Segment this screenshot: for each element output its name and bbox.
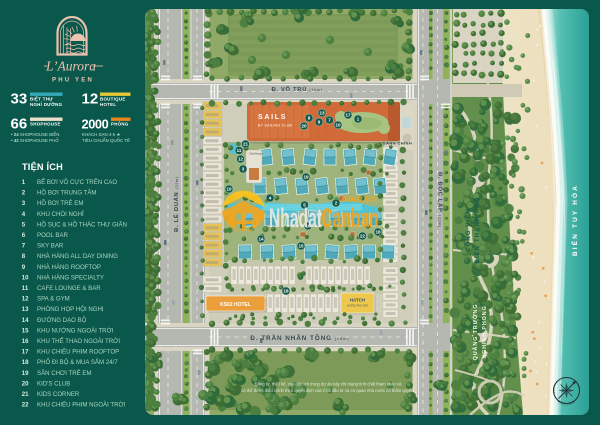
- svg-text:22: 22: [22, 402, 29, 409]
- svg-text:18: 18: [22, 359, 29, 366]
- svg-text:BIỆT THỰ: BIỆT THỰ: [30, 96, 53, 101]
- svg-text:có thể được điều chỉnh theo qu: có thể được điều chỉnh theo quyết định c…: [241, 388, 415, 393]
- svg-text:8: 8: [22, 253, 26, 260]
- svg-text:HỒ BƠI TRẺ EM: HỒ BƠI TRẺ EM: [37, 200, 83, 207]
- svg-text:20: 20: [301, 124, 307, 129]
- svg-text:KHU CHÒI NGHỈ: KHU CHÒI NGHỈ: [37, 211, 84, 218]
- svg-text:PHU YEN: PHU YEN: [52, 78, 94, 84]
- svg-text:2000: 2000: [82, 117, 109, 132]
- svg-text:1: 1: [22, 179, 26, 186]
- svg-text:NHÀ HÀNG ALL DAY DINING: NHÀ HÀNG ALL DAY DINING: [37, 253, 118, 260]
- svg-text:SAILS: SAILS: [258, 114, 287, 121]
- svg-text:NGHỈ DƯỠNG: NGHỈ DƯỠNG: [30, 102, 63, 107]
- svg-text:HỒ BƠI TRUNG TÂM: HỒ BƠI TRUNG TÂM: [37, 190, 97, 197]
- svg-text:PHÒNG HỌP HỘI NGHỊ: PHÒNG HỌP HỘI NGHỊ: [37, 306, 104, 313]
- svg-text:10: 10: [226, 187, 232, 192]
- svg-text:• 24 SHOPHOUSE BIỂN: • 24 SHOPHOUSE BIỂN: [11, 132, 59, 137]
- svg-text:PHÒNG: PHÒNG: [111, 121, 129, 126]
- svg-text:KHU NƯỚNG NGOÀI TRỜI: KHU NƯỚNG NGOÀI TRỜI: [37, 327, 114, 334]
- svg-text:BIỂN TUY HÒA: BIỂN TUY HÒA: [570, 184, 579, 256]
- svg-text:18: 18: [283, 289, 289, 294]
- svg-text:20: 20: [22, 380, 29, 387]
- svg-text:17: 17: [22, 349, 29, 356]
- svg-text:21: 21: [243, 142, 249, 147]
- svg-text:10: 10: [22, 274, 29, 281]
- svg-text:BỂ BƠI VÔ CỰC TRÊN CAO: BỂ BƠI VÔ CỰC TRÊN CAO: [37, 178, 117, 186]
- svg-text:CAFE LOUNGE & BAR: CAFE LOUNGE & BAR: [37, 285, 101, 292]
- svg-text:NGHINH PHONG: NGHINH PHONG: [482, 305, 488, 358]
- svg-text:NHÀ HÀNG ROOFTOP: NHÀ HÀNG ROOFTOP: [37, 264, 101, 271]
- svg-text:33: 33: [11, 91, 28, 108]
- svg-text:HATCH: HATCH: [350, 298, 365, 303]
- svg-text:22: 22: [360, 234, 366, 239]
- svg-text:.com.vn: .com.vn: [339, 194, 377, 205]
- svg-text:Đăng từ, thiết kế, các tiện íc: Đăng từ, thiết kế, các tiện ích trong dự…: [255, 382, 403, 387]
- svg-text:KHÁCH SẠN 4-5 ★: KHÁCH SẠN 4-5 ★: [82, 132, 120, 137]
- svg-text:Canban: Canban: [322, 203, 379, 233]
- svg-text:66: 66: [11, 116, 28, 133]
- svg-text:HOTEL PHU YEN: HOTEL PHU YEN: [347, 304, 368, 308]
- svg-text:19: 19: [303, 175, 309, 180]
- svg-text:12: 12: [82, 91, 99, 108]
- svg-text:TIỆN ÍCH: TIỆN ÍCH: [22, 161, 63, 172]
- svg-text:PHỐ ĐI BỘ & MUA SẮM 24/7: PHỐ ĐI BỘ & MUA SẮM 24/7: [37, 358, 118, 366]
- svg-text:KHU THỂ THAO NGOÀI TRỜI: KHU THỂ THAO NGOÀI TRỜI: [37, 338, 120, 345]
- svg-text:2: 2: [22, 190, 26, 197]
- svg-text:NHÀ HÀNG SPECIALTY: NHÀ HÀNG SPECIALTY: [37, 274, 104, 281]
- svg-text:14: 14: [258, 237, 264, 242]
- svg-text:SÂN CHƠI TRẺ EM: SÂN CHƠI TRẺ EM: [37, 370, 92, 377]
- svg-text:• 42 SHOPHOUSE PHỐ: • 42 SHOPHOUSE PHỐ: [11, 138, 59, 143]
- svg-text:12: 12: [238, 157, 244, 162]
- svg-text:TIÊU CHUẨN QUỐC TẾ: TIÊU CHUẨN QUỐC TẾ: [82, 138, 130, 143]
- svg-text:SẢNH CHÍNH: SẢNH CHÍNH: [383, 141, 412, 146]
- svg-text:15: 15: [22, 327, 29, 334]
- svg-text:KHU CHIẾU PHIM ROOFTOP: KHU CHIẾU PHIM ROOFTOP: [37, 349, 119, 356]
- svg-text:KS02 HOTEL: KS02 HOTEL: [220, 302, 251, 308]
- svg-text:3: 3: [22, 200, 26, 207]
- svg-text:16: 16: [22, 338, 29, 345]
- svg-text:ĐƯỜNG DẠO BỘ: ĐƯỜNG DẠO BỘ: [37, 317, 87, 324]
- svg-text:BY SAILING CLUB: BY SAILING CLUB: [258, 124, 293, 128]
- svg-text:6: 6: [22, 232, 26, 239]
- svg-text:21: 21: [22, 391, 29, 398]
- svg-text:Nhadat: Nhadat: [269, 203, 322, 233]
- svg-text:POOL BAR: POOL BAR: [37, 232, 69, 239]
- svg-text:BIỂN THÀNH PHỐ: BIỂN THÀNH PHỐ: [474, 196, 481, 263]
- svg-text:KID'S CLUB: KID'S CLUB: [37, 380, 70, 387]
- svg-text:12: 12: [22, 296, 29, 303]
- svg-text:13: 13: [22, 306, 29, 313]
- svg-text:HỒ SỤC & HỒ THÁC THƯ GIÃN: HỒ SỤC & HỒ THÁC THƯ GIÃN: [37, 221, 127, 228]
- svg-text:10: 10: [335, 123, 341, 128]
- svg-text:KHU CHIẾU PHIM NGOÀI TRỜI: KHU CHIẾU PHIM NGOÀI TRỜI: [37, 402, 126, 409]
- svg-text:SKY BAR: SKY BAR: [37, 243, 64, 250]
- svg-text:ClubHouse: ClubHouse: [249, 152, 263, 156]
- svg-text:17: 17: [345, 113, 351, 118]
- svg-text:KIDS CORNER: KIDS CORNER: [37, 391, 80, 398]
- svg-text:SPA & GYM: SPA & GYM: [37, 296, 70, 303]
- svg-text:QUẢNG TRƯỜNG: QUẢNG TRƯỜNG: [471, 304, 479, 361]
- svg-text:13: 13: [319, 111, 325, 116]
- svg-text:11: 11: [22, 285, 29, 292]
- svg-text:15: 15: [298, 244, 304, 249]
- svg-text:SHOPHOUSE: SHOPHOUSE: [30, 121, 61, 126]
- svg-text:19: 19: [22, 370, 29, 377]
- svg-text:14: 14: [22, 317, 29, 324]
- svg-text:HOTEL: HOTEL: [100, 102, 116, 107]
- svg-text:5: 5: [22, 221, 26, 228]
- svg-text:9: 9: [22, 264, 26, 271]
- svg-text:11: 11: [237, 148, 242, 153]
- svg-text:Đ. VÕ TRỦ (16m): Đ. VÕ TRỦ (16m): [271, 86, 322, 93]
- svg-text:4: 4: [22, 211, 26, 218]
- svg-text:7: 7: [22, 243, 26, 250]
- svg-text:BOUTIQUE: BOUTIQUE: [100, 96, 126, 101]
- svg-text:CÔNG VIÊN: CÔNG VIÊN: [464, 208, 472, 252]
- svg-text:L’Aurora: L’Aurora: [45, 59, 96, 74]
